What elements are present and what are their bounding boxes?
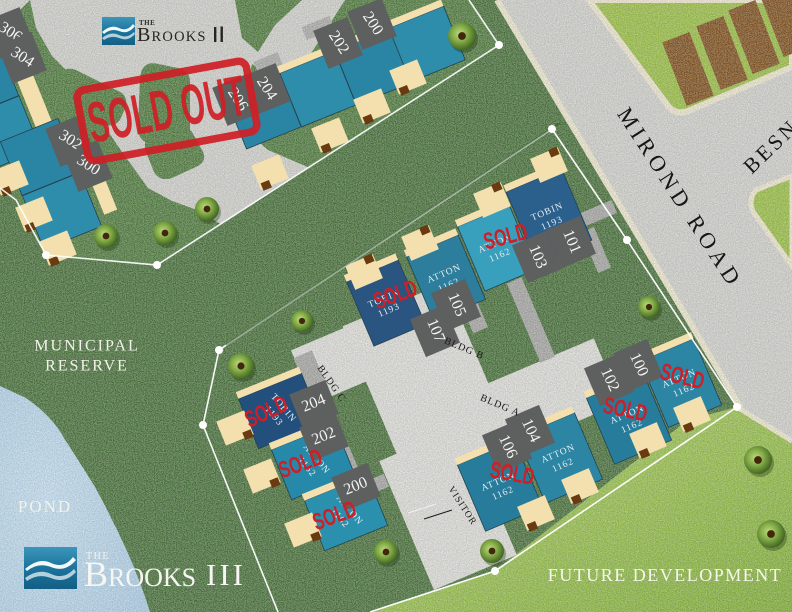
svg-text:RESERVE: RESERVE [45,358,129,375]
svg-text:FUTURE DEVELOPMENT: FUTURE DEVELOPMENT [548,565,783,585]
svg-text:POND: POND [18,497,72,516]
svg-text:MUNICIPAL: MUNICIPAL [34,338,139,355]
svg-text:III: III [206,557,246,592]
